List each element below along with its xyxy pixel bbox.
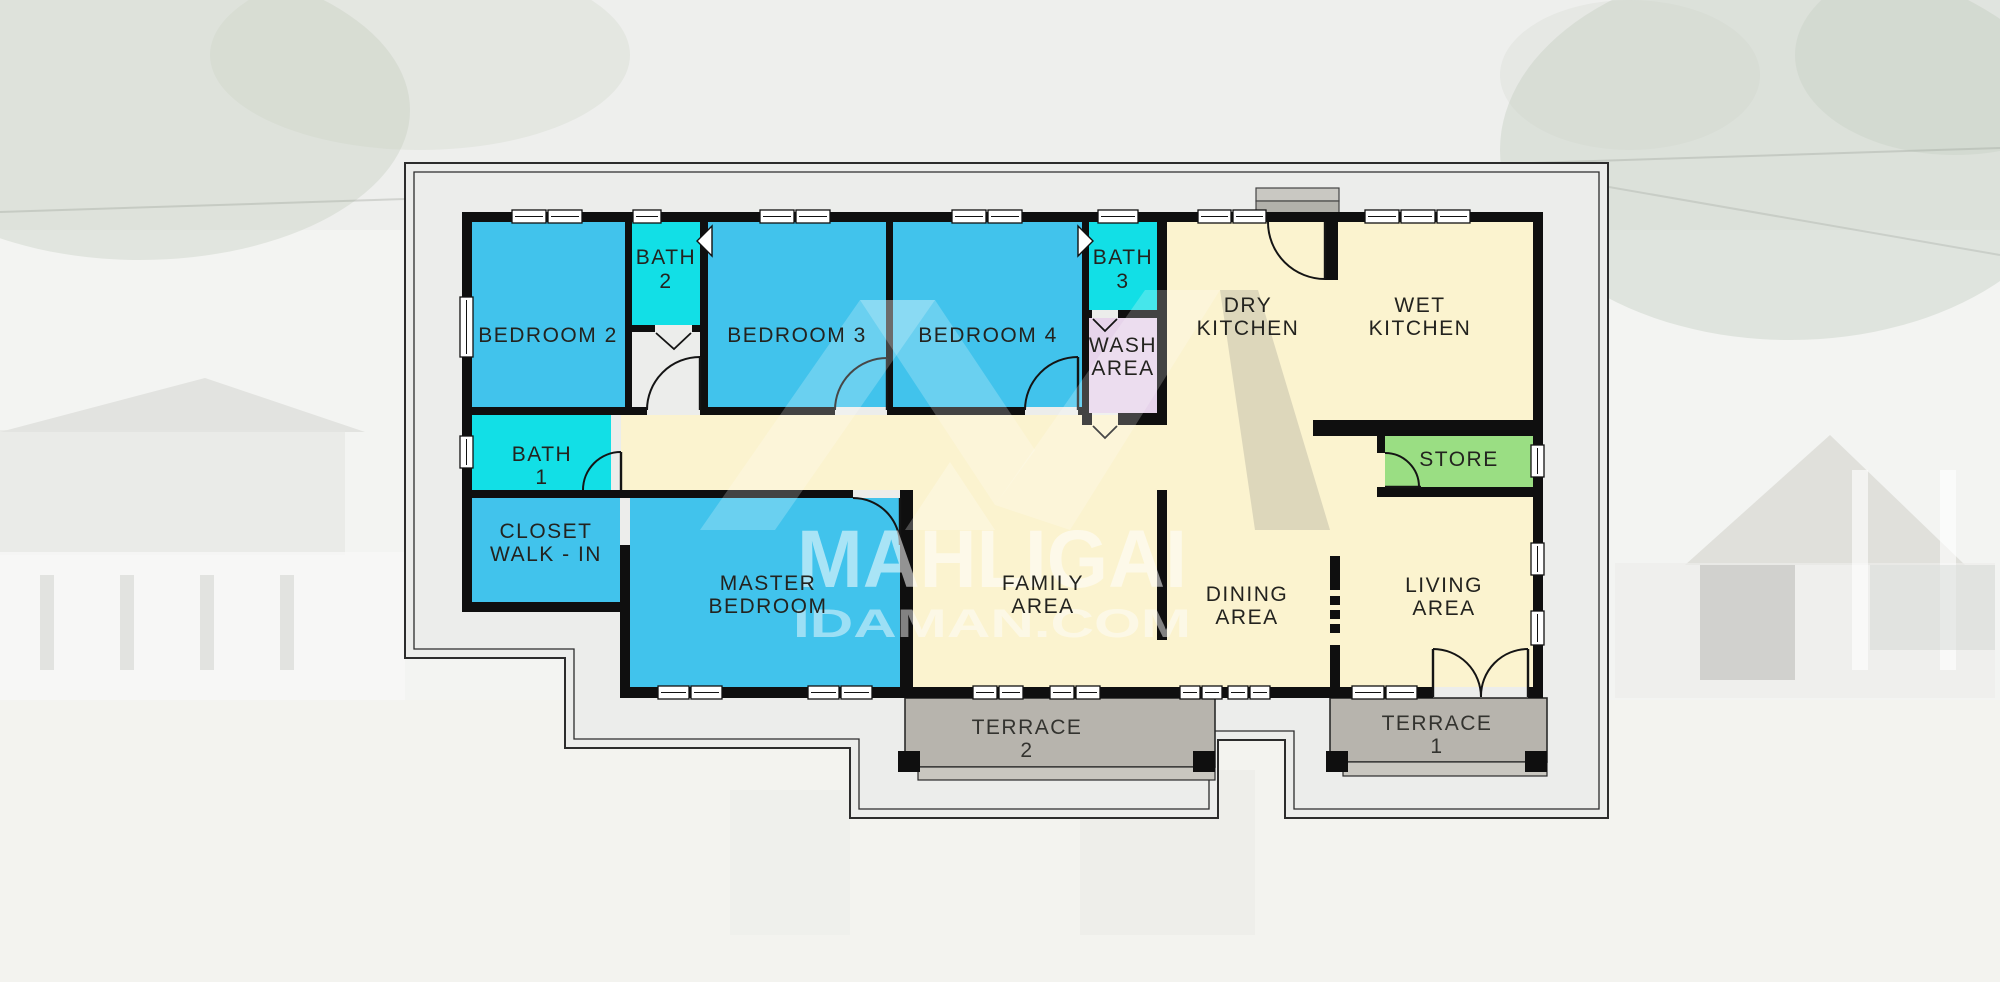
label-closet: CLOSETWALK - IN (490, 520, 602, 566)
label-wash-area: WASHAREA (1089, 334, 1157, 380)
wall-segment (1325, 222, 1338, 280)
window (1233, 210, 1266, 223)
label-living-area: LIVINGAREA (1405, 574, 1483, 620)
canopy-step (1256, 188, 1339, 201)
house-garage (1700, 565, 1795, 680)
window (1401, 210, 1435, 223)
window (1365, 210, 1399, 223)
label-master-bedroom: MASTERBEDROOM (708, 572, 827, 618)
terrace-2 (898, 698, 1215, 780)
truck-blob (1870, 565, 1995, 650)
window (1250, 686, 1270, 699)
screenshot-root: MAHLIGAI IDAMAN.COM BEDROOM 2 BATH2 BEDR… (0, 0, 2000, 982)
watermark-brand-text: MAHLIGAI (797, 514, 1187, 605)
wall-segment (625, 325, 655, 332)
window (460, 297, 473, 357)
window (1202, 686, 1222, 699)
window (988, 210, 1022, 223)
window (999, 686, 1023, 699)
wall-segment (462, 407, 647, 415)
terrace1-post (1326, 751, 1348, 772)
terrace1-post (1525, 751, 1547, 772)
window (973, 686, 997, 699)
window (1076, 686, 1100, 699)
window (952, 210, 986, 223)
window (548, 210, 582, 223)
watermark-domain-text: IDAMAN.COM (793, 602, 1191, 646)
terrace2-post (1193, 751, 1215, 772)
window (658, 686, 689, 699)
window (1531, 543, 1544, 575)
window (1180, 686, 1200, 699)
room-bedroom2 (472, 222, 625, 407)
window (1198, 210, 1231, 223)
label-store: STORE (1419, 448, 1498, 471)
terrace1-step (1343, 762, 1547, 776)
label-dining-area: DININGAREA (1206, 583, 1289, 629)
window (760, 210, 794, 223)
wall-segment (1313, 420, 1543, 436)
fence-slat (200, 575, 214, 670)
window (1352, 686, 1384, 699)
fence-slat (280, 575, 294, 670)
window (796, 210, 830, 223)
window (1228, 686, 1248, 699)
window (460, 436, 473, 468)
entrance-canopy (1256, 188, 1339, 214)
label-family-area: FAMILYAREA (1002, 572, 1084, 618)
fence-slat (120, 575, 134, 670)
window (841, 686, 872, 699)
partition-dash (1330, 596, 1340, 605)
terrace2-post (898, 751, 920, 772)
label-bedroom3: BEDROOM 3 (727, 324, 867, 347)
window (1098, 210, 1138, 223)
wall-segment (462, 602, 630, 612)
window (691, 686, 722, 699)
wall-segment (1377, 429, 1385, 453)
label-bedroom2: BEDROOM 2 (478, 324, 618, 347)
window (1531, 611, 1544, 645)
house-wall-left (0, 430, 345, 555)
wall-segment (1082, 310, 1092, 318)
partition-dash (1330, 624, 1340, 633)
partition-stub (1330, 556, 1340, 590)
window (1050, 686, 1074, 699)
floor-plan-svg: MAHLIGAI IDAMAN.COM BEDROOM 2 BATH2 BEDR… (0, 0, 2000, 982)
window (512, 210, 546, 223)
wall-segment (1377, 487, 1543, 497)
window (633, 210, 661, 223)
partition-stub (1330, 645, 1340, 687)
label-bedroom4: BEDROOM 4 (918, 324, 1058, 347)
terrace2-step (918, 767, 1215, 780)
window (1531, 445, 1544, 477)
fence-slat (40, 575, 54, 670)
window (1437, 210, 1470, 223)
wall-segment (620, 545, 630, 698)
wall-segment (1528, 687, 1543, 698)
wall-segment (625, 222, 632, 407)
tree-foliage (1500, 0, 1760, 150)
partition-dash (1330, 610, 1340, 619)
window (1386, 686, 1417, 699)
porch-column (1852, 470, 1868, 670)
window (808, 686, 839, 699)
